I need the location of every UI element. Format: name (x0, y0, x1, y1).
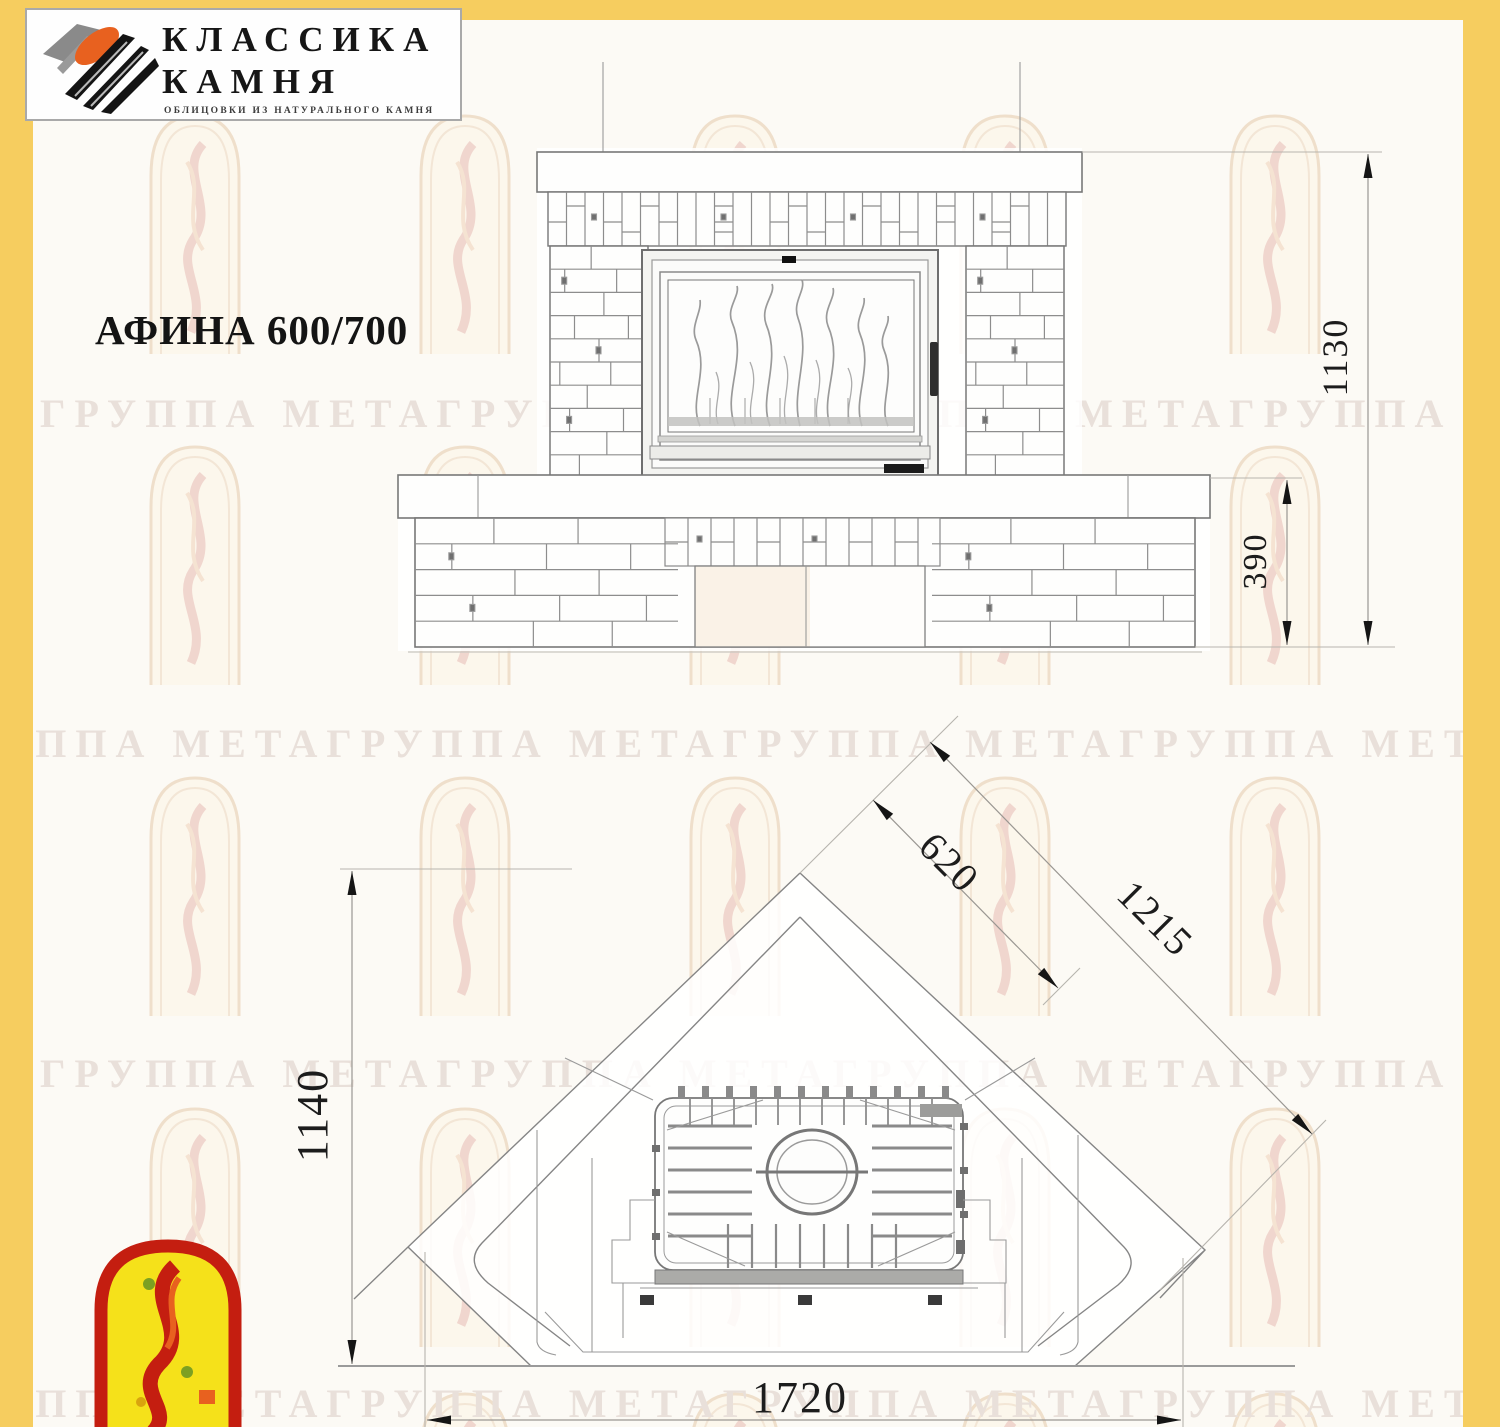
logo-text-line1: КЛАССИКА (162, 20, 437, 60)
latch (782, 256, 796, 263)
door-handle (930, 342, 938, 396)
company-logo: КЛАССИКА КАМНЯ ОБЛИЦОВКИ ИЗ НАТУРАЛЬНОГО… (25, 8, 462, 121)
technical-drawing: 1130 390 (0, 0, 1500, 1427)
logo-stone-icon (35, 16, 160, 116)
dim-corner-offset: 620 (910, 823, 988, 901)
dim-depth: 1140 (288, 1068, 337, 1162)
firebox-door (642, 250, 938, 478)
mantel-shelf (537, 152, 1082, 192)
page: ГРУППА МЕТАГРУППА МЕТАГРУППА МЕТАГРУППА … (0, 0, 1500, 1427)
insert-front-band (655, 1270, 963, 1284)
hearth-shelf (398, 475, 1210, 518)
front-view: 1130 390 (398, 62, 1395, 652)
door-label (884, 464, 924, 473)
grate-bar (668, 417, 914, 426)
firebird-arch-icon (83, 1232, 253, 1427)
plan-view: 1140 1720 620 1215 (288, 716, 1326, 1427)
dim-total-height: 1130 (1315, 318, 1355, 397)
logo-tagline: ОБЛИЦОВКИ ИЗ НАТУРАЛЬНОГО КАМНЯ (164, 106, 434, 116)
insert-step (920, 1104, 962, 1117)
wood-niche-left (695, 566, 810, 647)
dim-base-height: 390 (1237, 533, 1274, 590)
dim-width: 1720 (752, 1373, 848, 1422)
wood-niche-right (810, 566, 925, 647)
logo-text-line2: КАМНЯ (162, 62, 343, 102)
page-title: АФИНА 600/700 (95, 306, 408, 354)
dim-diagonal: 1215 (1109, 871, 1203, 965)
flue-lines (603, 62, 1020, 152)
